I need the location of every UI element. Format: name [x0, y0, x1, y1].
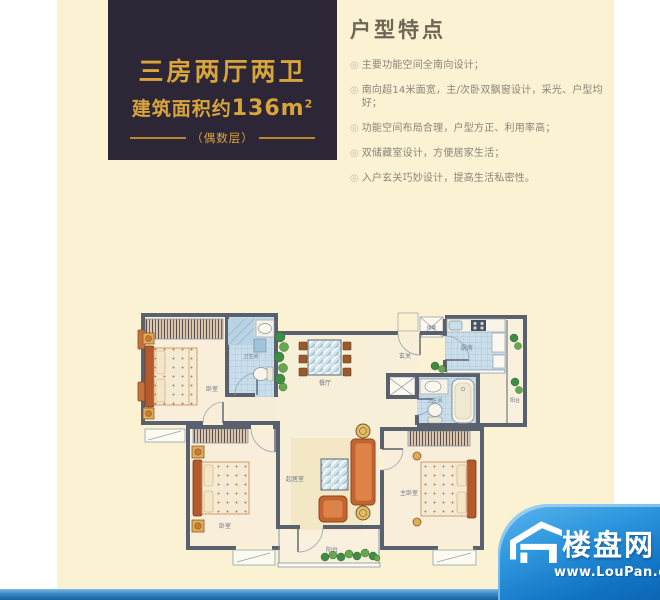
page: 三房两厅两卫 建筑面积约136m2 （偶数层） 户型特点 ◎主要功能空间全南向设…	[0, 0, 660, 600]
bullet-icon: ◎	[350, 84, 359, 97]
entry-lobby-outline	[398, 313, 418, 331]
feature-item: ◎主要功能空间全南向设计；	[350, 59, 616, 72]
features-list: ◎主要功能空间全南向设计； ◎南向超14米面宽，主/次卧双飘窗设计，采光、户型均…	[350, 59, 616, 185]
features-panel: 户型特点 ◎主要功能空间全南向设计； ◎南向超14米面宽，主/次卧双飘窗设计，采…	[350, 14, 616, 197]
dining-table-icon	[299, 340, 351, 376]
floor-parity-label: （偶数层）	[191, 130, 254, 146]
room-label-dining: 餐厅	[319, 379, 331, 387]
logo-row: 楼盘网	[510, 520, 660, 566]
area-line: 建筑面积约136m2	[108, 94, 337, 121]
gold-rule-right	[259, 137, 315, 139]
feature-item: ◎入户玄关巧妙设计，提高生活私密性。	[350, 172, 616, 185]
bullet-icon: ◎	[350, 147, 359, 160]
features-heading: 户型特点	[350, 14, 616, 44]
feature-item: ◎双储藏室设计，方便居家生活；	[350, 147, 616, 160]
house-icon	[510, 520, 562, 566]
bullet-icon: ◎	[350, 59, 359, 72]
room-label-living: 起居室	[286, 475, 304, 483]
floorplan: 卧室 卫生间 餐厅 玄关 储藏 厨房 阳台 卫生间 卧室 起居室 主卧室 阳台	[115, 300, 555, 590]
room-label-bedroom-1: 卧室	[206, 385, 218, 393]
room-label-foyer: 玄关	[399, 352, 411, 360]
site-url: www.LouPan.com	[554, 565, 660, 580]
bullet-icon: ◎	[350, 122, 359, 135]
area-prefix: 建筑面积约	[132, 98, 232, 120]
room-label-bedroom-2: 卧室	[219, 522, 231, 530]
bullet-icon: ◎	[350, 172, 359, 185]
tv-table-icon	[321, 459, 348, 490]
room-label-master-bedroom: 主卧室	[400, 489, 418, 497]
site-name: 楼盘网	[562, 522, 655, 564]
feature-item: ◎南向超14米面宽，主/次卧双飘窗设计，采光、户型均好；	[350, 84, 616, 110]
area-value: 136m	[232, 96, 305, 121]
room-label-kitchen: 厨房	[461, 344, 473, 352]
bed-icon	[413, 452, 476, 526]
room-label-bath-1: 卫生间	[243, 353, 258, 360]
layout-title: 三房两厅两卫	[108, 52, 337, 88]
area-superscript: 2	[305, 98, 314, 111]
title-box: 三房两厅两卫 建筑面积约136m2 （偶数层）	[108, 0, 337, 160]
room-label-balcony-right: 阳台	[510, 397, 520, 404]
feature-item: ◎功能空间布局合理，户型方正、利用率高；	[350, 122, 616, 135]
floor-parity-line: （偶数层）	[108, 130, 337, 146]
room-label-bath-2: 卫生间	[427, 397, 442, 404]
gold-rule-left	[130, 137, 186, 139]
loupan-watermark-badge[interactable]: 楼盘网 www.LouPan.com	[498, 504, 660, 600]
room-label-storage: 储藏	[427, 324, 436, 331]
room-label-balcony-bottom: 阳台	[326, 546, 338, 554]
